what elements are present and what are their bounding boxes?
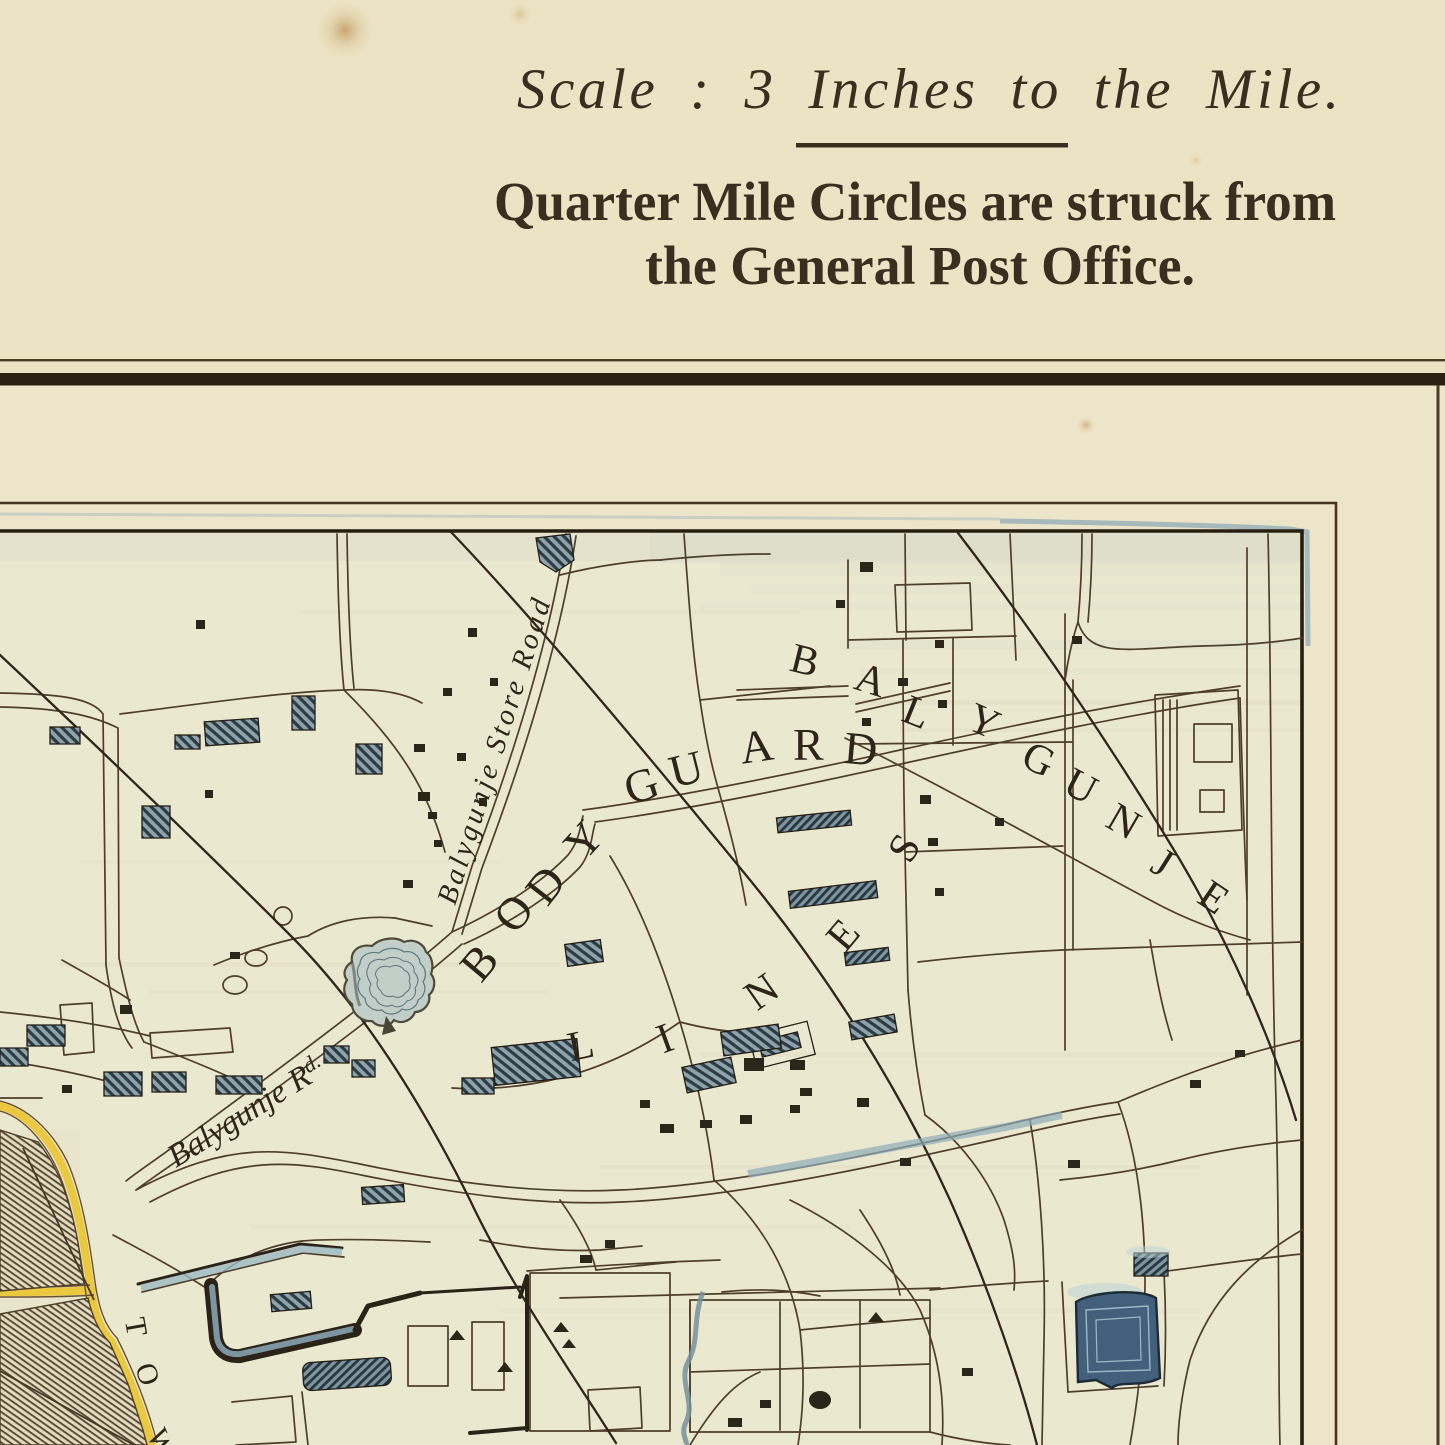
svg-text:A: A [736,719,776,774]
svg-text:Scale : 3 Inches to the Mile.: Scale : 3 Inches to the Mile. [517,58,1339,121]
svg-text:D: D [842,722,880,776]
svg-text:Quarter Mile Circles are struc: Quarter Mile Circles are struck from [494,171,1336,232]
svg-text:R: R [793,719,824,770]
svg-text:the General Post Office.: the General Post Office. [645,235,1195,296]
